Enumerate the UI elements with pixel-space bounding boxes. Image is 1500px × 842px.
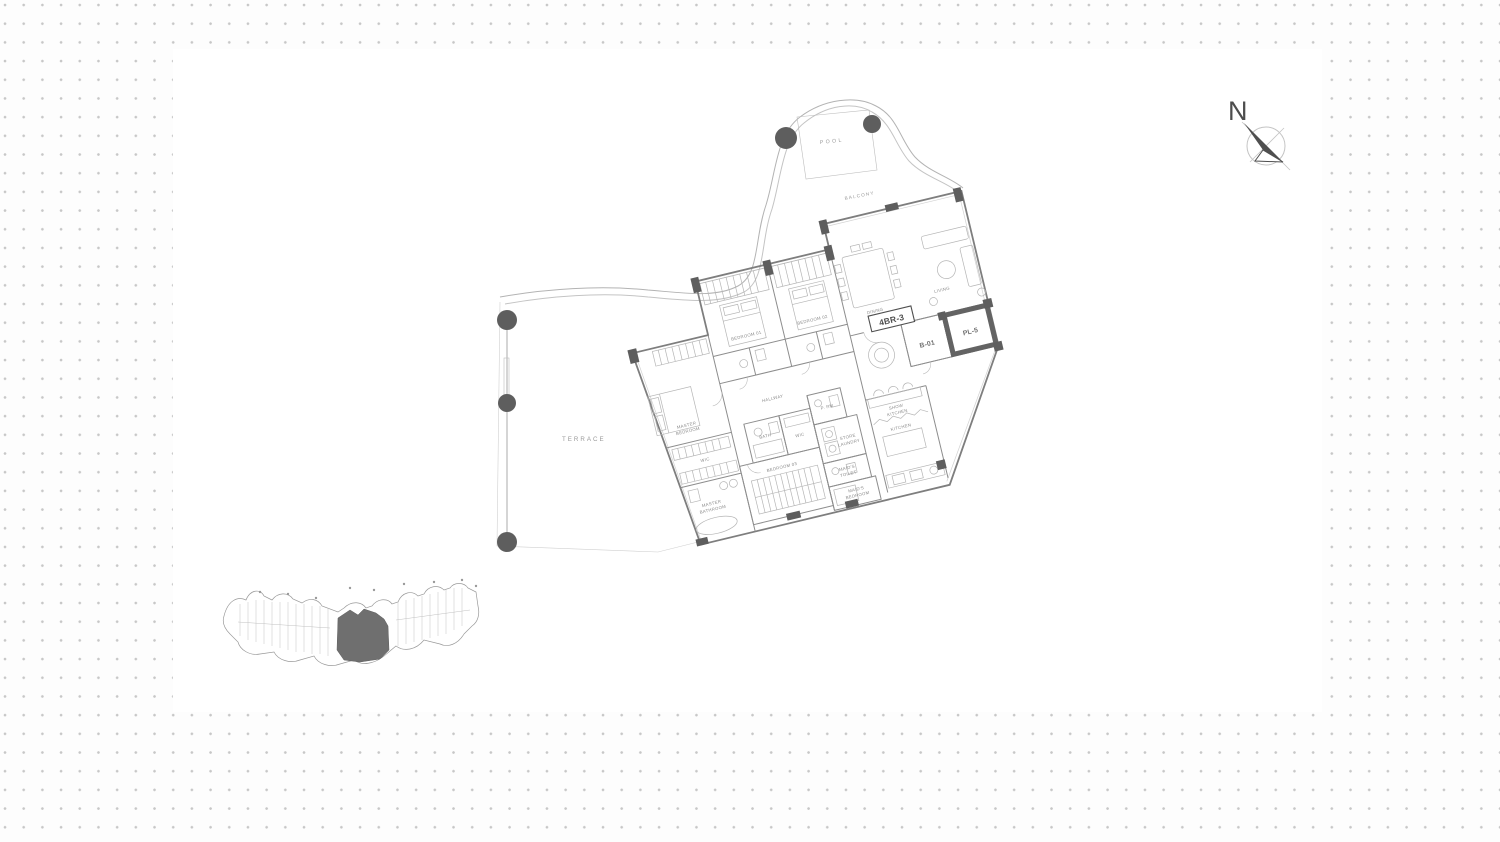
living-furniture <box>914 225 986 308</box>
service-rooms <box>727 384 881 529</box>
column-blocks <box>608 186 1031 551</box>
terrace-column <box>497 310 517 330</box>
powder-room-label: P. RM <box>820 403 834 411</box>
north-label: N <box>1228 96 1248 126</box>
b01-lobby-label: B-01 <box>919 339 936 349</box>
pool-column <box>863 115 881 133</box>
compass: N <box>1228 96 1290 170</box>
unit-perimeter-wall <box>613 191 1027 550</box>
floor-plan-drawing: POOL BALCONY TERRACE <box>0 0 1500 842</box>
unit-4br3: BEDROOM 01 BEDROOM 02 DINING LIVING MAST… <box>608 186 1031 551</box>
floor-plan-page: POOL BALCONY TERRACE <box>0 0 1500 842</box>
room-labels: BEDROOM 01 BEDROOM 02 DINING LIVING MAST… <box>657 280 1010 535</box>
kitchen-furniture <box>866 379 945 488</box>
terrace-area: TERRACE <box>497 302 702 552</box>
foyer-rug <box>866 339 897 370</box>
key-plan <box>223 579 479 666</box>
wic-master-label: WIC <box>700 456 710 463</box>
kitchen-label: KITCHEN <box>890 422 912 432</box>
living-label: LIVING <box>934 285 951 294</box>
terrace-column <box>497 532 517 552</box>
balcony-label: BALCONY <box>844 190 875 201</box>
room-bedroom-03 <box>740 447 834 524</box>
pool-column <box>775 127 797 149</box>
key-plan-highlighted-unit <box>337 609 389 662</box>
bedroom-03-furniture <box>751 465 825 514</box>
pl5-lift-label: PL-5 <box>962 327 979 337</box>
terrace-column <box>498 394 516 412</box>
hallway-label: HALLWAY <box>761 393 783 403</box>
pool-label: POOL <box>820 138 845 146</box>
terrace-label: TERRACE <box>562 436 606 443</box>
wic-2-label: WIC <box>795 431 805 438</box>
terrace-boundary <box>497 302 702 552</box>
bath-label: BATH <box>759 432 772 440</box>
balcony-outer-curve <box>500 100 963 297</box>
